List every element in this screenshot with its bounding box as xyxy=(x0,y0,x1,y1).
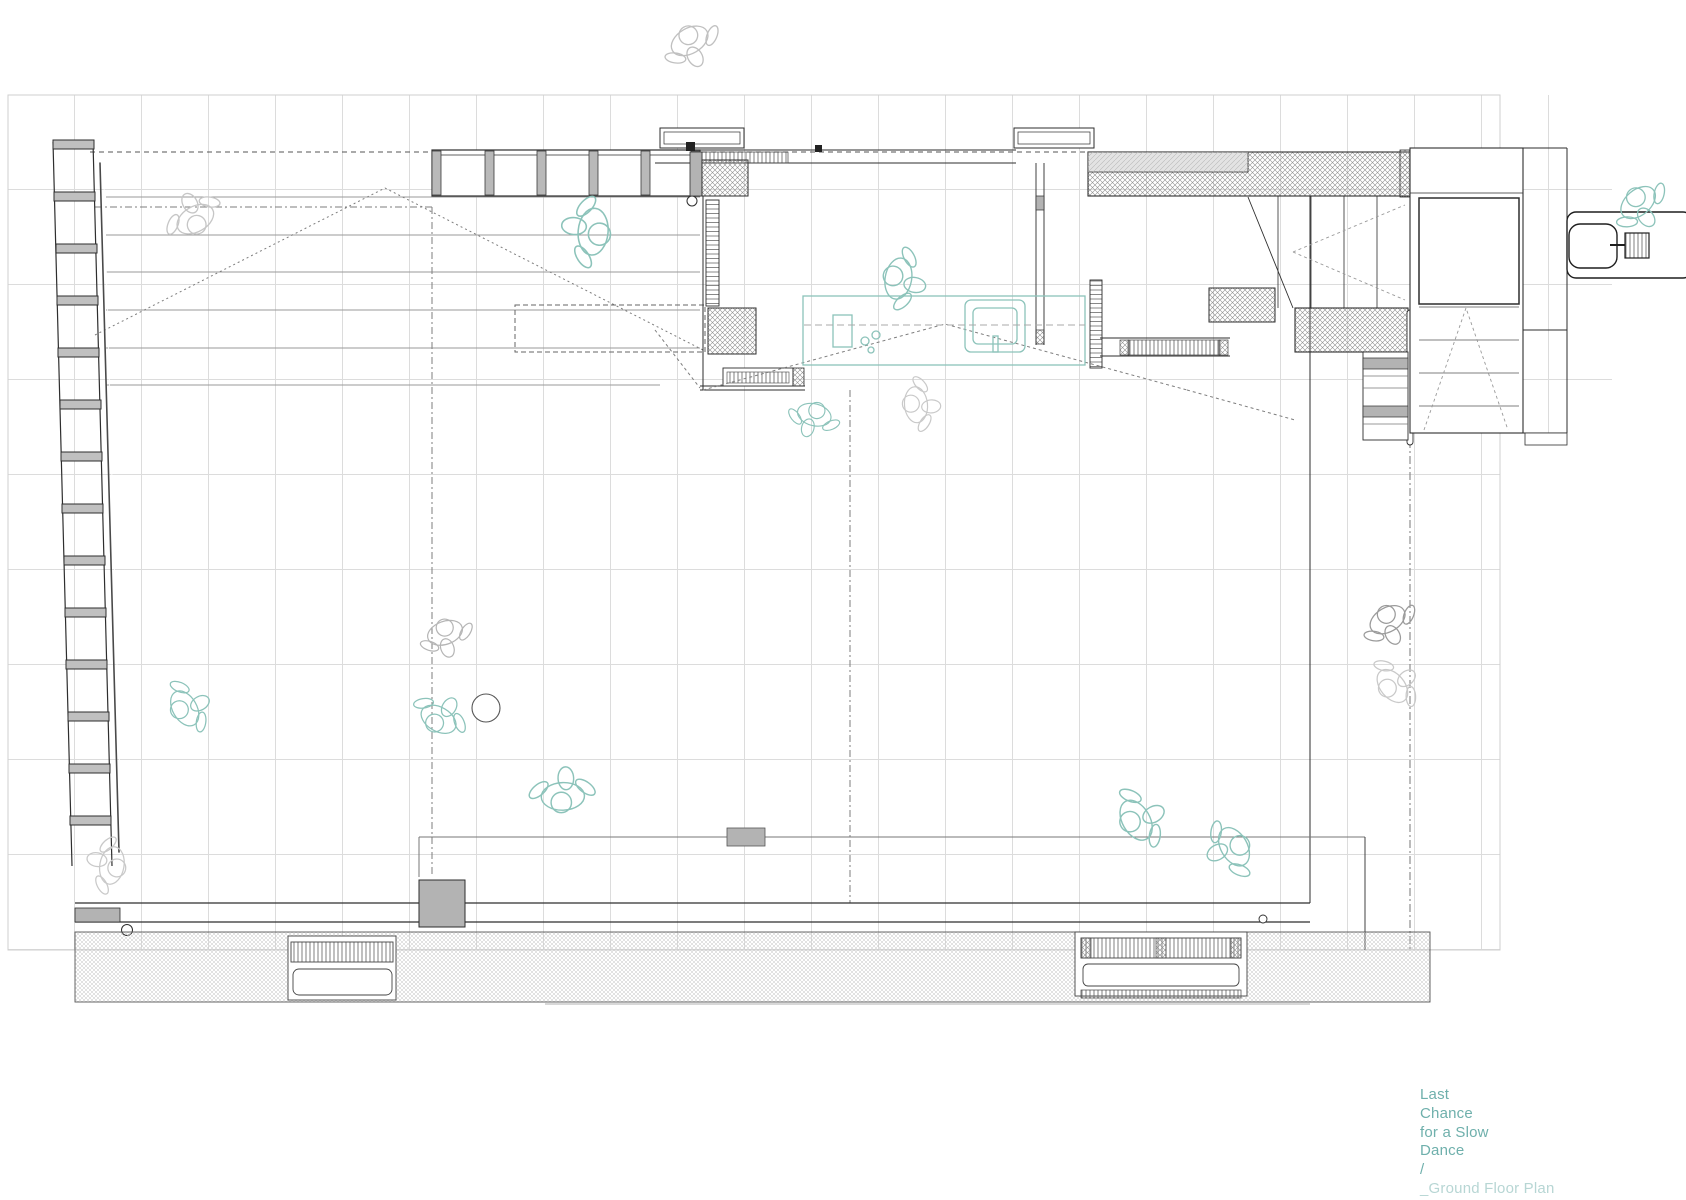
title-line: for a Slow xyxy=(1420,1124,1640,1143)
title-line: / xyxy=(1420,1161,1640,1180)
title-line: Chance xyxy=(1420,1105,1640,1124)
bench-east xyxy=(1075,932,1247,998)
title-block: Last Chance for a Slow Dance / _Ground F… xyxy=(1420,1086,1640,1199)
south-terrace xyxy=(75,932,1430,1004)
title-line-drawing-name: _Ground Floor Plan xyxy=(1420,1180,1640,1199)
person-figure-passerby-top xyxy=(654,11,732,80)
ball xyxy=(472,694,500,722)
title-line: Dance xyxy=(1420,1142,1640,1161)
floor-plan-drawing xyxy=(0,0,1686,1200)
title-line: Last xyxy=(1420,1086,1640,1105)
reception-desk xyxy=(1567,212,1686,278)
bench-west xyxy=(288,936,396,1000)
stair-lower-steps xyxy=(1363,352,1408,440)
paving-grid xyxy=(8,95,1612,950)
